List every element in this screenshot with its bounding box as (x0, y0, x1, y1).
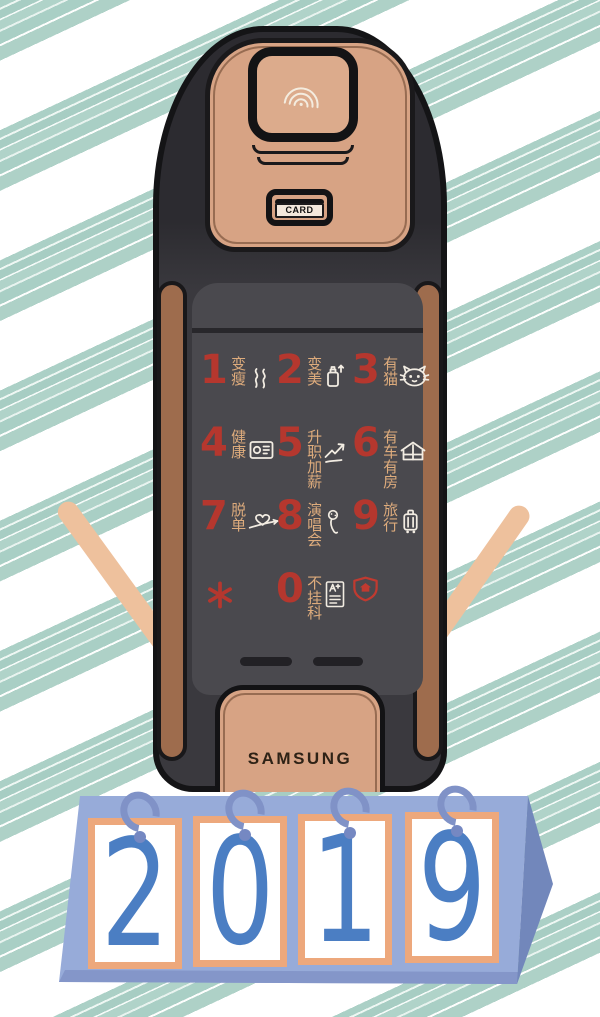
fingerprint-module (248, 47, 358, 142)
key-5-label: 升职加薪 (306, 429, 321, 489)
certificate-icon (249, 440, 274, 460)
keypad-grid: 1 变瘦 2 变美 (200, 353, 421, 645)
card-reader: CARD (266, 189, 333, 226)
key-2: 2 变美 (276, 353, 352, 426)
key-3-number: 3 (352, 353, 380, 387)
key-0-label: 不挂科 (306, 575, 321, 620)
calendar-card-4: 9 (405, 812, 499, 963)
key-9-label: 旅行 (382, 502, 397, 532)
ring-hole-dot (451, 825, 463, 837)
rising-chart-icon (323, 439, 351, 465)
calendar-digit: 2 (101, 820, 170, 968)
key-1-number: 1 (200, 353, 228, 387)
key-9-number: 9 (352, 499, 380, 533)
calendar-digit: 9 (418, 814, 487, 962)
calendar-digit: 1 (311, 816, 380, 964)
brand-logo-text: SAMSUNG (220, 750, 380, 767)
calendar-card-3: 1 (298, 814, 392, 965)
ring-hole-dot (134, 831, 146, 843)
asterisk-key-icon (206, 581, 234, 609)
keypad-panel: 1 变瘦 2 变美 (192, 283, 423, 695)
calendar-card-2: 0 (193, 816, 287, 967)
calendar-card-1: 2 (88, 818, 182, 969)
fingerprint-cover-edge (257, 157, 349, 165)
key-8-label: 演唱会 (306, 502, 321, 547)
key-6-number: 6 (352, 426, 380, 460)
key-5: 5 升职加薪 (276, 426, 352, 499)
key-2-label: 变美 (306, 356, 321, 386)
cat-icon (399, 364, 430, 387)
key-2-number: 2 (276, 353, 304, 387)
key-7-label: 脱单 (230, 502, 245, 532)
key-4-label: 健康 (230, 429, 245, 459)
key-0: 0 不挂科 (276, 572, 352, 645)
key-1-label: 变瘦 (230, 356, 245, 386)
calendar-digit: 0 (206, 818, 275, 966)
key-7-number: 7 (200, 499, 228, 533)
key-3-label: 有猫 (382, 356, 397, 386)
key-6-label: 有车有房 (382, 429, 397, 489)
lower-slot-dash (313, 657, 363, 666)
card-slot-label: CARD (275, 203, 324, 218)
key-4-number: 4 (200, 426, 228, 460)
lower-slot-dash (240, 657, 292, 666)
keypad-divider-line (192, 328, 423, 333)
fingerprint-cover-edge (252, 145, 354, 154)
lock-left-side (157, 281, 187, 761)
fingerprint-icon (279, 74, 327, 116)
key-7: 7 脱单 (200, 499, 276, 572)
microphone-icon (324, 509, 341, 536)
ring-hole-dot (344, 827, 356, 839)
steam-icon (250, 366, 270, 390)
perfume-bottle-icon (325, 362, 345, 389)
key-3: 3 有猫 (352, 353, 431, 426)
key-4: 4 健康 (200, 426, 276, 499)
security-shield-icon (352, 576, 379, 602)
key-asterisk (200, 572, 276, 645)
key-0-number: 0 (276, 572, 304, 606)
samsung-door-lock: CARD 1 变瘦 2 变美 (153, 26, 447, 792)
key-8-number: 8 (276, 499, 304, 533)
key-9: 9 旅行 (352, 499, 431, 572)
key-1: 1 变瘦 (200, 353, 276, 426)
exam-sheet-icon (324, 580, 346, 609)
house-car-icon (399, 440, 427, 462)
key-security (352, 572, 431, 645)
key-5-number: 5 (276, 426, 304, 460)
suitcase-icon (401, 509, 420, 535)
flip-calendar-2019: 2 0 1 9 (55, 772, 565, 1012)
ring-hole-dot (239, 829, 251, 841)
key-6: 6 有车有房 (352, 426, 431, 499)
key-8: 8 演唱会 (276, 499, 352, 572)
illustration-stage: CARD 1 变瘦 2 变美 (0, 0, 600, 1017)
